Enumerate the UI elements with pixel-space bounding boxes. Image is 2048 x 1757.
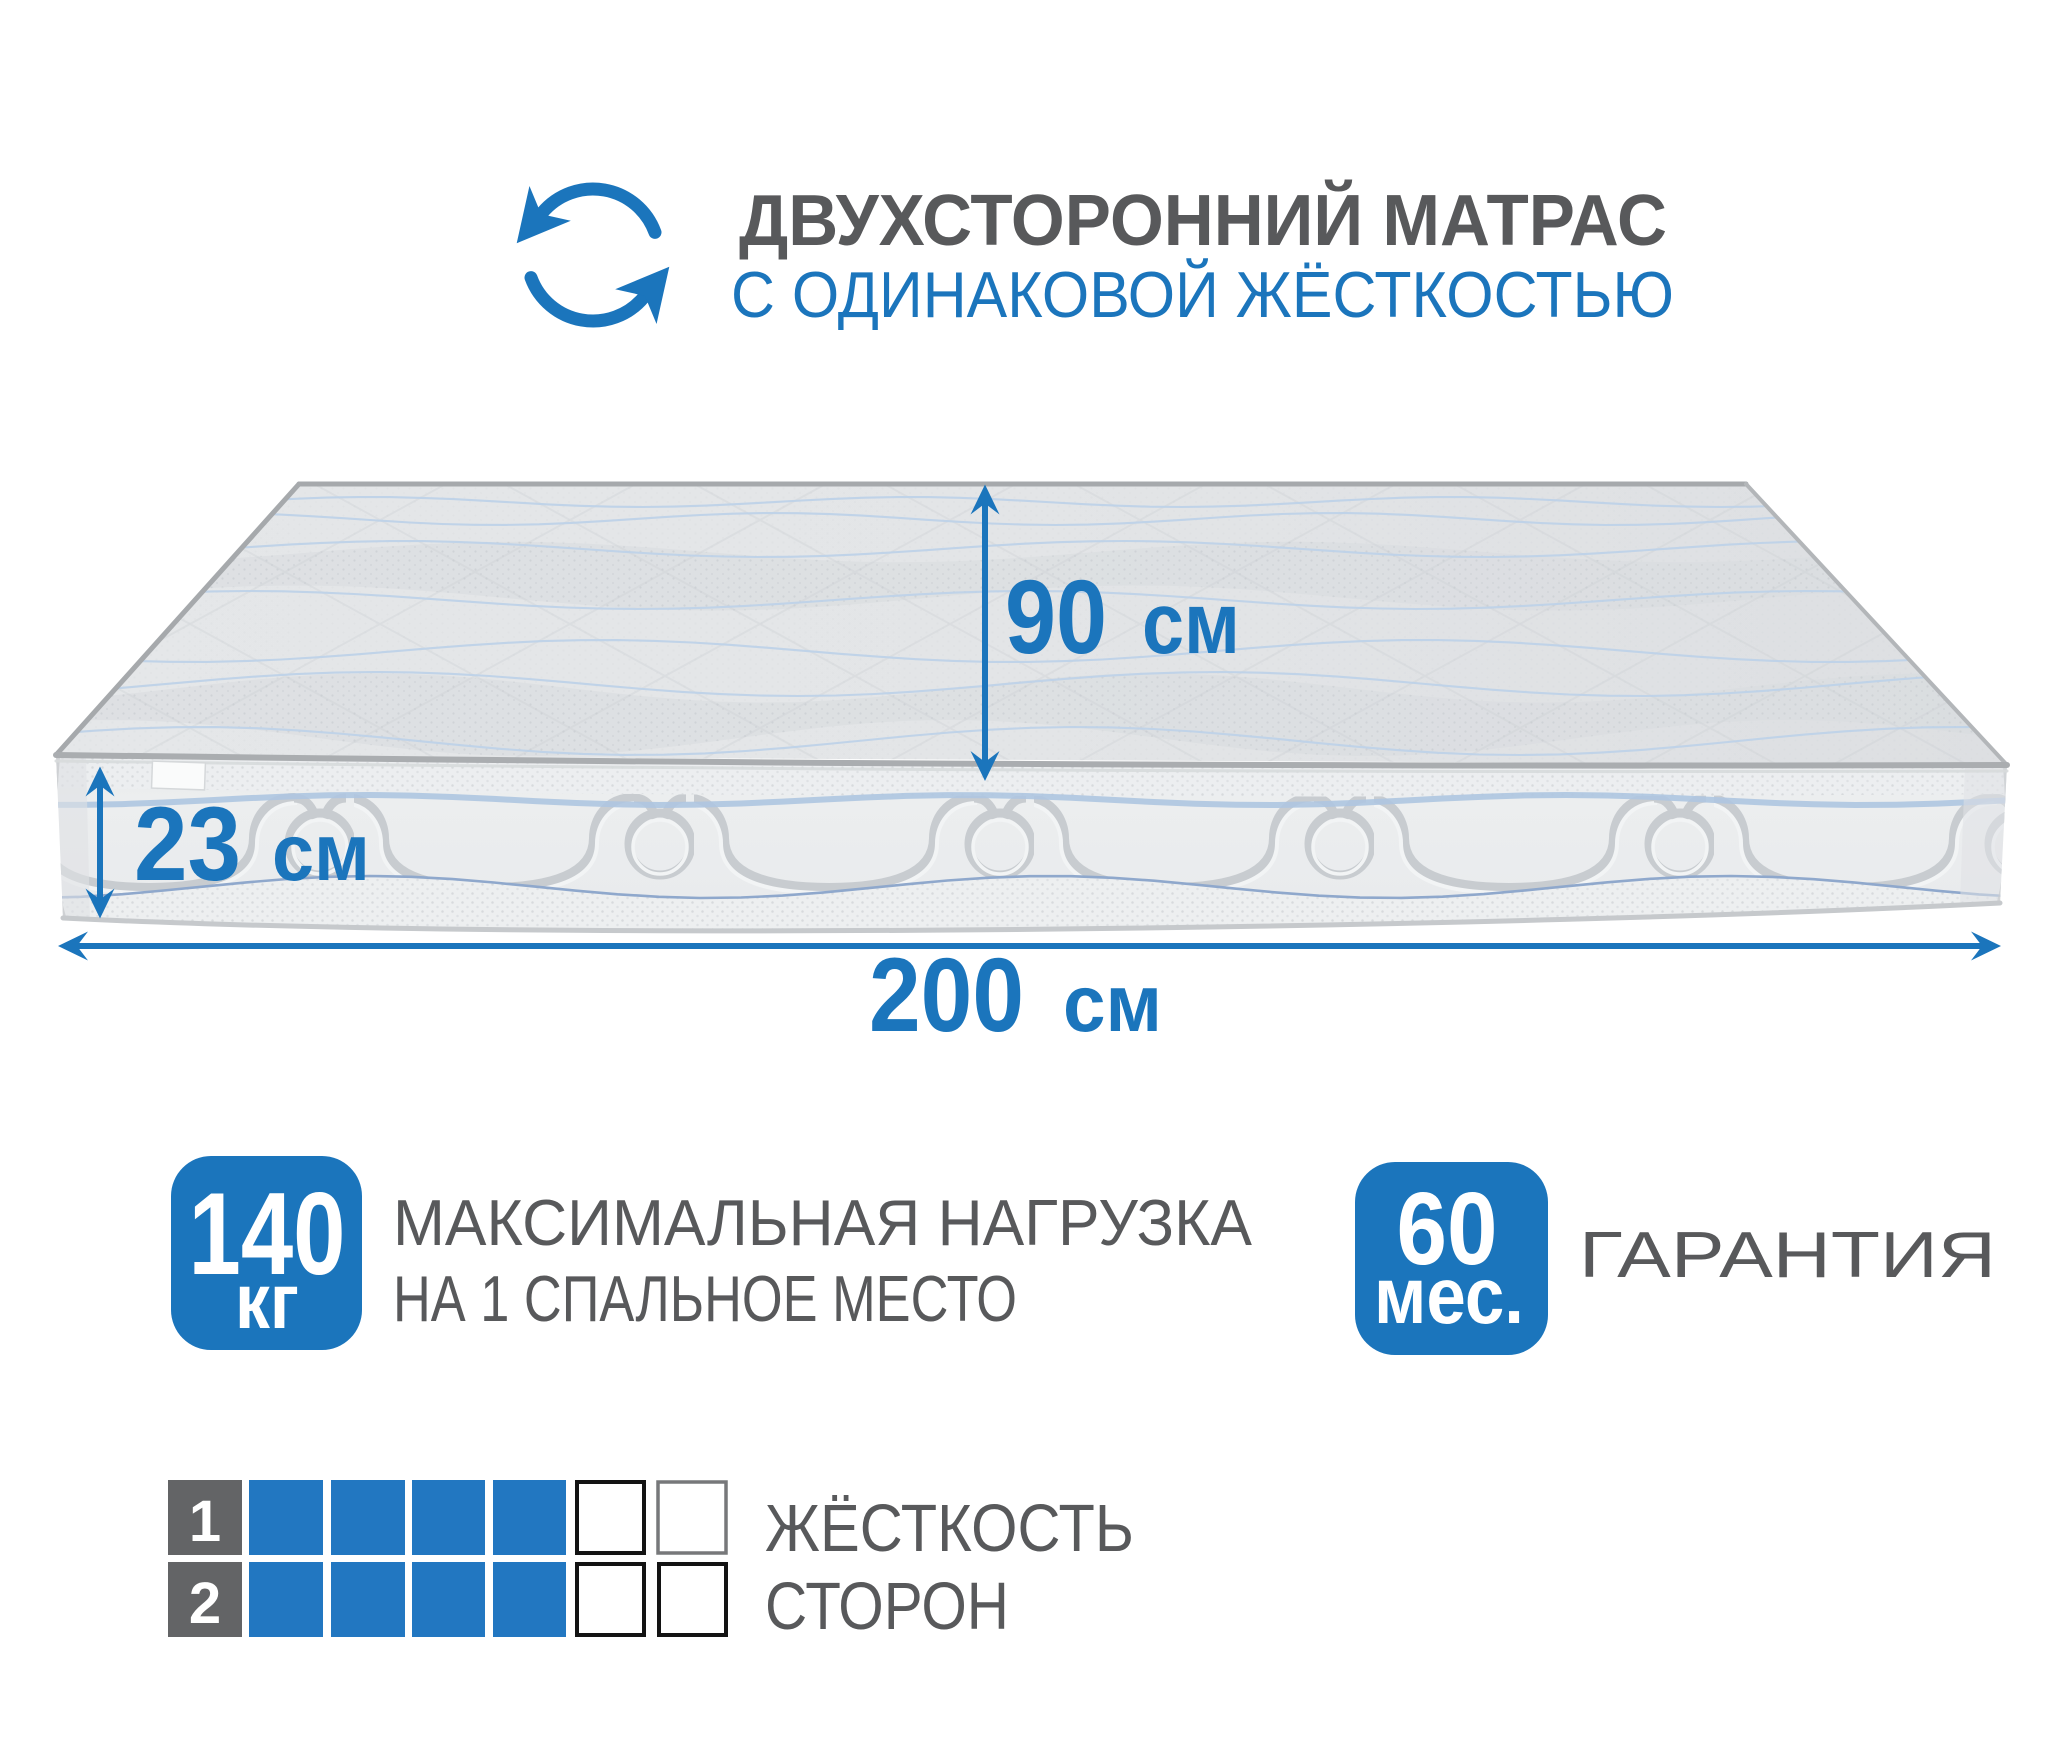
svg-text:1: 1	[189, 1489, 221, 1554]
svg-text:С ОДИНАКОВОЙ ЖЁСТКОСТЬЮ: С ОДИНАКОВОЙ ЖЁСТКОСТЬЮ	[731, 258, 1674, 331]
svg-text:ДВУХСТОРОННИЙ МАТРАС: ДВУХСТОРОННИЙ МАТРАС	[739, 179, 1667, 261]
svg-text:200: 200	[869, 937, 1024, 1054]
svg-text:ЖЁСТКОСТЬ: ЖЁСТКОСТЬ	[765, 1491, 1134, 1566]
svg-text:90: 90	[1005, 559, 1107, 676]
svg-text:СТОРОН: СТОРОН	[765, 1569, 1009, 1644]
svg-text:ГАРАНТИЯ: ГАРАНТИЯ	[1579, 1218, 1996, 1291]
svg-text:см: см	[1063, 959, 1162, 1049]
svg-text:кг: кг	[235, 1257, 299, 1345]
svg-text:МАКСИМАЛЬНАЯ НАГРУЗКА: МАКСИМАЛЬНАЯ НАГРУЗКА	[393, 1186, 1253, 1259]
svg-text:мес.: мес.	[1374, 1251, 1524, 1340]
svg-text:см: см	[1142, 575, 1240, 672]
svg-text:23: 23	[134, 786, 241, 903]
svg-text:см: см	[272, 808, 370, 898]
svg-text:НА 1 СПАЛЬНОЕ МЕСТО: НА 1 СПАЛЬНОЕ МЕСТО	[393, 1262, 1017, 1335]
svg-text:2: 2	[189, 1571, 221, 1636]
